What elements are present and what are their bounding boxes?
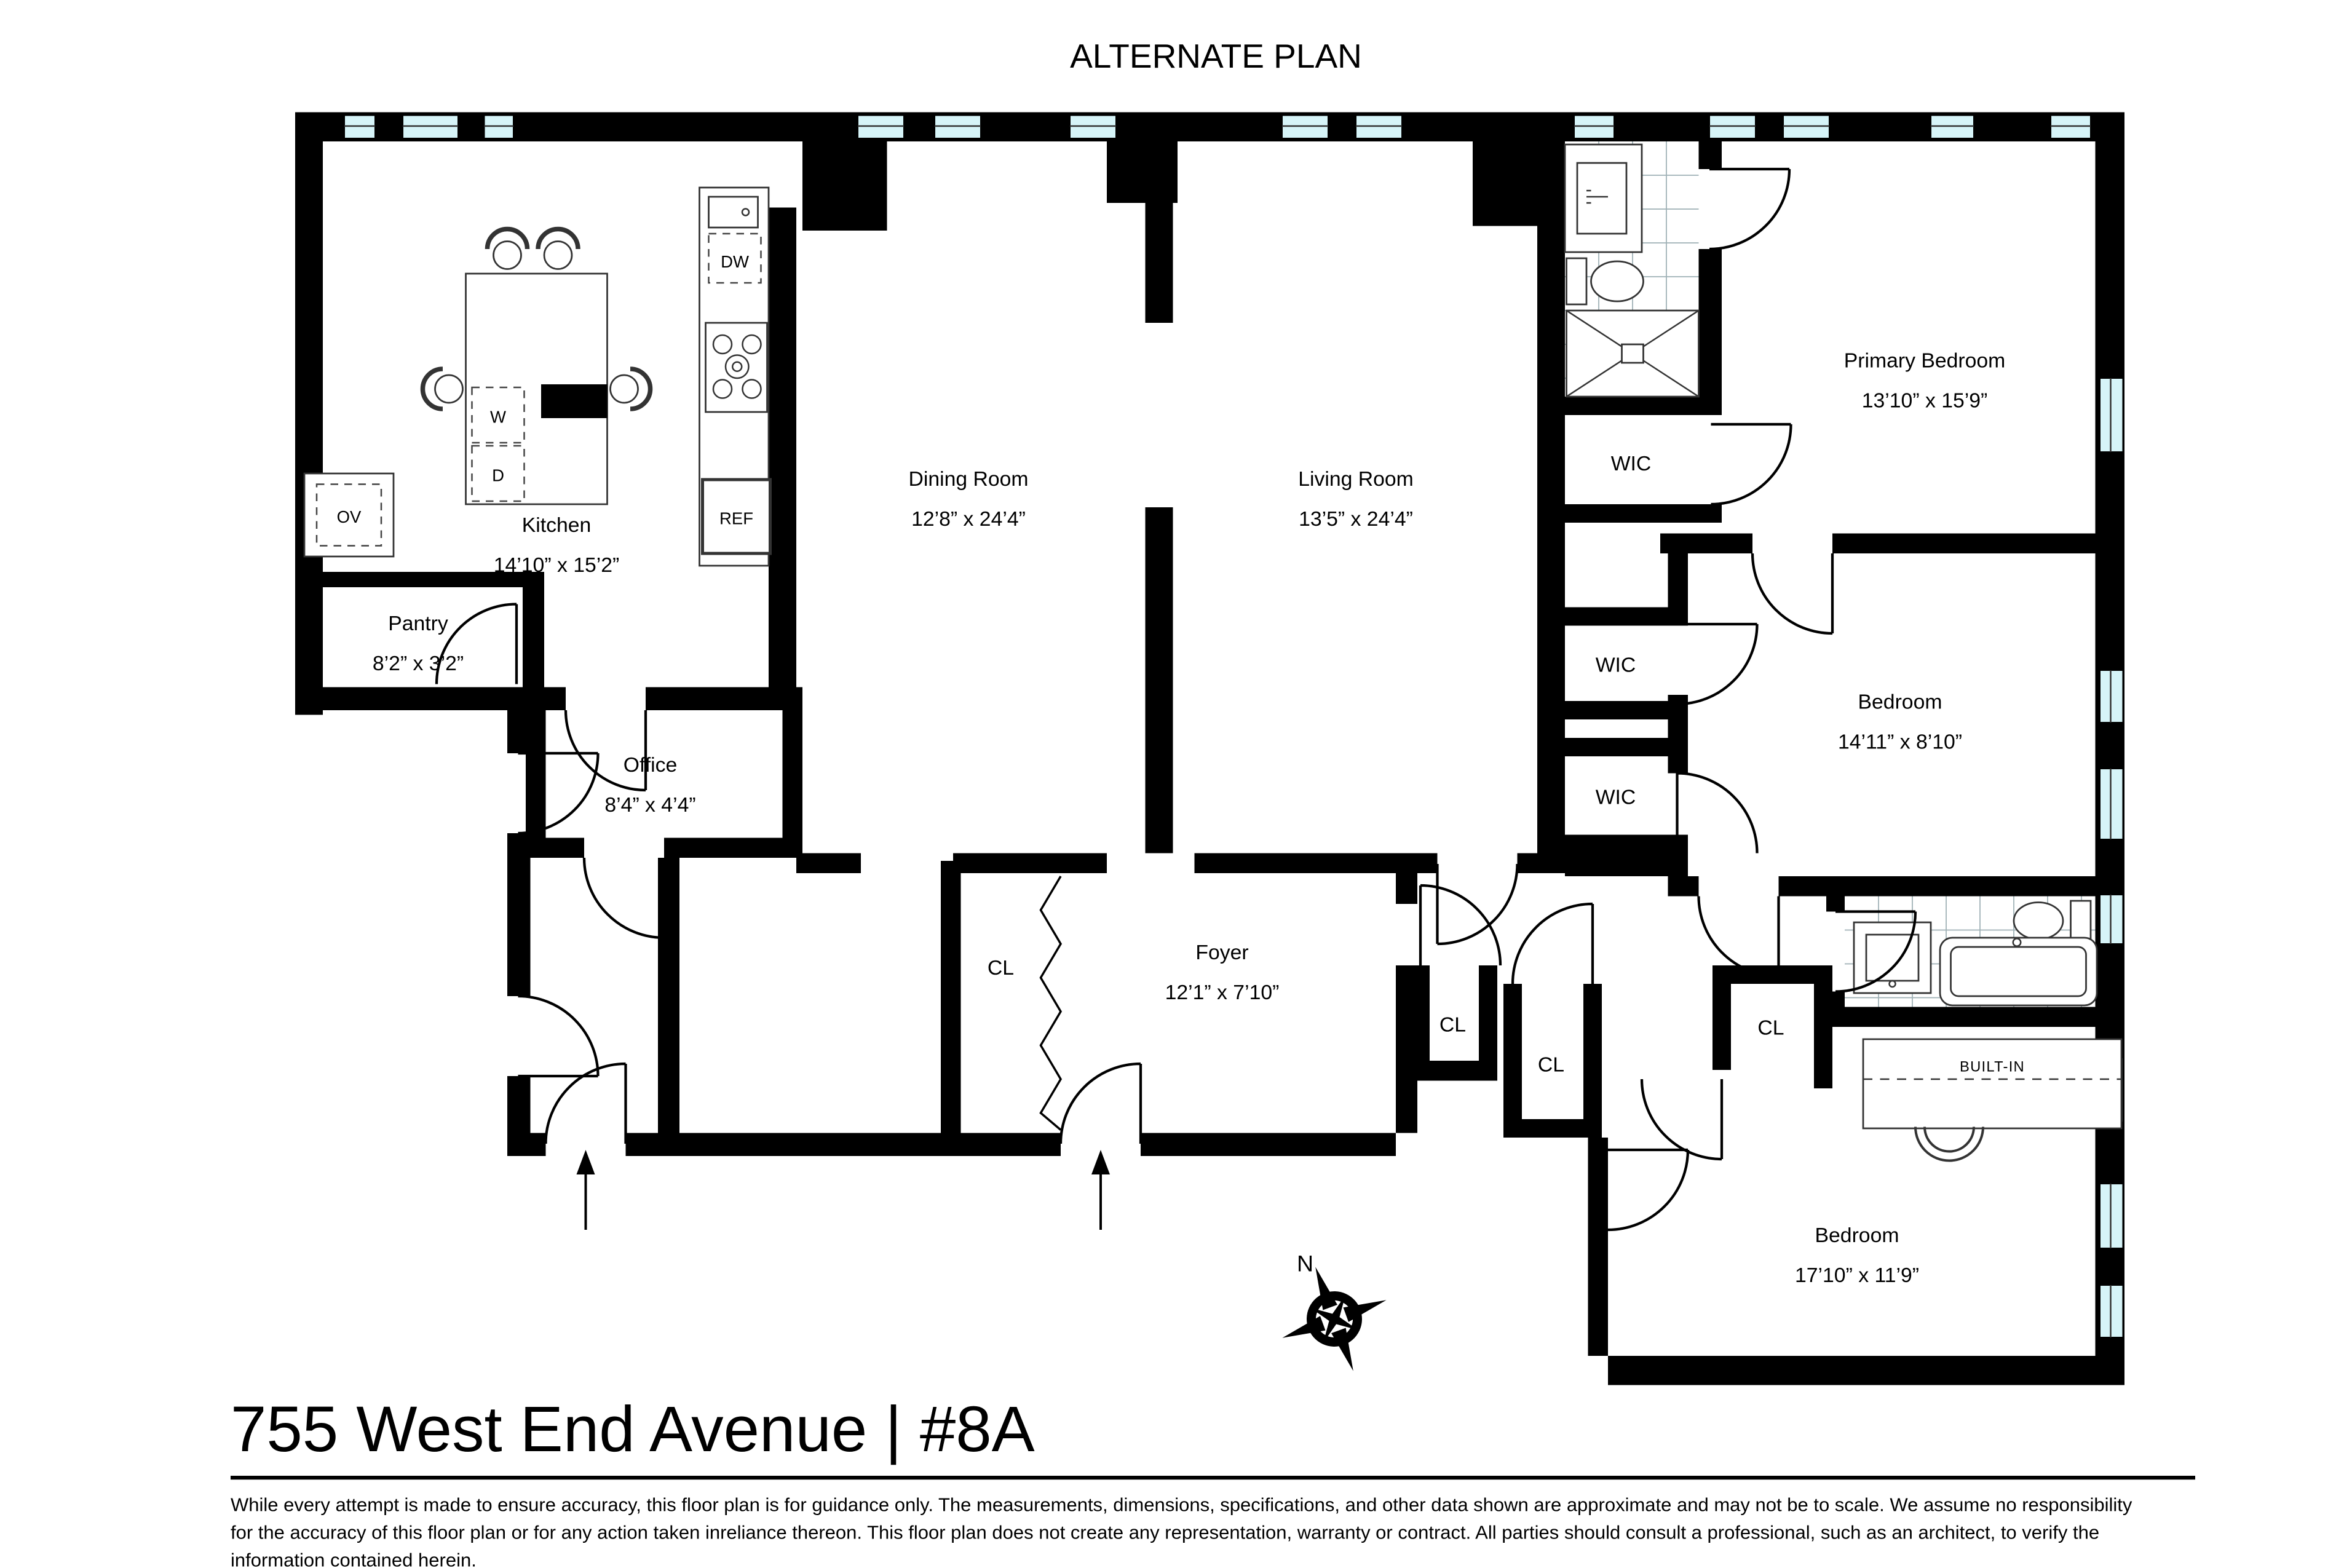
door-closet <box>1513 904 1593 984</box>
stove <box>706 323 767 412</box>
room-living: Living Room 13’5” x 24’4” <box>1298 467 1414 531</box>
chair-icon <box>423 369 463 409</box>
footer: 755 West End Avenue | #8A While every at… <box>231 1393 2195 1568</box>
room-bedroom-mid: Bedroom 14’11” x 8’10” <box>1838 691 1962 754</box>
wall-band <box>646 687 802 711</box>
primary-bathroom <box>1565 141 1699 397</box>
compass: N <box>1264 1248 1406 1390</box>
room-dims: 14’11” x 8’10” <box>1838 731 1962 754</box>
wall-bath-right <box>1699 141 1722 169</box>
bathroom-sink <box>1577 163 1626 234</box>
room-name: Primary Bedroom <box>1844 349 2006 373</box>
door-office-bottom <box>584 858 664 938</box>
room-dims: 17’10” x 11’9” <box>1795 1264 1919 1287</box>
entry-arrow-head <box>577 1150 595 1174</box>
kitchen-fixtures: DW REF OV W D <box>304 188 770 566</box>
wall-kitchen-divider <box>769 572 796 687</box>
room-name: Foyer <box>1195 941 1248 964</box>
wall-bedroom-left <box>1668 553 1689 615</box>
room-dims: 12’8” x 24’4” <box>911 507 1026 531</box>
cl-bedroom-label: CL <box>1757 1016 1784 1040</box>
toilet-bowl <box>1591 261 1644 301</box>
room-bedroom-bottom: Bedroom 17’10” x 11’9” <box>1795 1224 1919 1287</box>
door-closet <box>1420 885 1500 965</box>
room-dims: 12’1” x 7’10” <box>1165 981 1280 1004</box>
wall-hall-left <box>507 833 531 996</box>
wall-closet <box>1713 965 1731 1070</box>
disclaimer-line-2: for the accuracy of this floor plan or f… <box>231 1522 2099 1543</box>
wall-hall-left <box>507 710 531 753</box>
dryer-label: D <box>492 466 504 485</box>
wall-entry <box>626 1133 680 1157</box>
room-dims: 8’4” x 4’4” <box>604 793 695 817</box>
wall-band <box>295 687 566 711</box>
oven-label: OV <box>337 507 362 526</box>
door-foyer-entry <box>1061 1064 1141 1144</box>
wall-pantry-top <box>295 572 523 587</box>
wall-pilaster <box>802 141 887 231</box>
wall-office-bottom <box>526 838 584 858</box>
wall-bath-right <box>1699 249 1722 397</box>
wall-hall <box>1565 853 1688 877</box>
room-dims: 8’2” x 3’2” <box>373 652 464 675</box>
room-name: Office <box>624 753 678 777</box>
wall-bedroom-divider <box>1832 534 2096 554</box>
door-wic-3 <box>1677 774 1757 853</box>
wic-2-label: WIC <box>1596 654 1636 677</box>
wall-gallery <box>796 853 861 874</box>
wall-bedroom-divider <box>1660 534 1752 554</box>
room-name: Bedroom <box>1858 691 1942 714</box>
compass-north-label: N <box>1297 1251 1313 1277</box>
chair-icon <box>488 229 528 269</box>
room-dims: 13’5” x 24’4” <box>1299 507 1413 531</box>
wall-bedroom-left <box>1668 695 1689 774</box>
disclaimer-line-3: information contained herein. <box>231 1550 477 1568</box>
door-wic-2 <box>1677 624 1757 704</box>
toilet-tank <box>2071 901 2091 941</box>
room-name: Bedroom <box>1815 1224 1899 1247</box>
built-in-label: BUILT-IN <box>1960 1059 2025 1075</box>
wall-hall-right <box>658 858 679 1133</box>
wall-wic <box>1545 504 1722 523</box>
door-wic-primary <box>1711 424 1791 504</box>
door-closet <box>1642 1079 1722 1159</box>
bathtub-inner <box>1951 947 2086 996</box>
door-bedroom-mid-exit <box>1699 897 1779 976</box>
floor-plan-page: ALTERNATE PLAN <box>0 0 2352 1568</box>
wall-bedroom-bottom <box>1779 876 2096 897</box>
room-kitchen: Kitchen 14’10” x 15’2” <box>494 513 620 577</box>
wall-bath2-left <box>1826 897 1845 912</box>
wall-office-bottom <box>664 838 802 858</box>
closet-accordion-door <box>1041 876 1061 1130</box>
address-title: 755 West End Avenue | #8A <box>231 1393 1035 1465</box>
toilet-tank <box>1567 258 1587 304</box>
room-dims: 14’10” x 15’2” <box>494 553 620 577</box>
room-dining: Dining Room 12’8” x 24’4” <box>908 467 1028 531</box>
room-name: Dining Room <box>908 467 1028 491</box>
door-primary-bath <box>1709 169 1789 249</box>
wall-bedroom3-left <box>1588 1138 1609 1356</box>
shower-drain <box>1622 344 1644 363</box>
chair-icon <box>538 229 578 269</box>
door-bedroom-mid <box>1752 553 1832 633</box>
wall-foyer-bottom <box>679 1133 1061 1157</box>
wall-gallery <box>1518 853 1566 874</box>
wall-top <box>295 113 2124 142</box>
wall-wic <box>1545 608 1689 626</box>
door-office-top <box>566 710 646 790</box>
wall-foyer-bottom <box>1141 1133 1396 1157</box>
floor-plan-drawing: ALTERNATE PLAN <box>0 0 2352 1568</box>
wall-pantry-right <box>523 572 544 703</box>
built-in-desk: BUILT-IN <box>1863 1039 2121 1161</box>
door-hall <box>518 996 598 1076</box>
kitchen-sink <box>709 197 758 228</box>
wall-gallery <box>1396 853 1438 874</box>
wall-chimney <box>1473 141 1565 226</box>
wall-divider-stub <box>1146 507 1173 853</box>
wall-bedroom-bottom <box>1668 876 1699 897</box>
disclaimer-line-1: While every attempt is made to ensure ac… <box>231 1494 2132 1516</box>
refrigerator-label: REF <box>719 509 753 528</box>
cl-foyer-label: CL <box>988 956 1014 980</box>
wall-closet <box>1503 984 1522 1138</box>
wall-wic <box>1545 738 1689 756</box>
room-name: Living Room <box>1298 467 1414 491</box>
wall-entry <box>507 1133 546 1157</box>
room-primary-bedroom: Primary Bedroom 13’10” x 15’9” <box>1844 349 2006 413</box>
wall-bedroom-bottom <box>1608 1356 2124 1385</box>
room-pantry: Pantry 8’2” x 3’2” <box>373 612 464 675</box>
wall-closet-foyer <box>941 861 961 1133</box>
wall-gallery <box>1195 853 1396 874</box>
wall-left <box>295 113 323 715</box>
door-living-hall <box>1438 864 1518 944</box>
wall-closet <box>1411 1061 1497 1081</box>
wall-gallery <box>953 853 1107 874</box>
island-notch <box>541 384 608 418</box>
wall-divider-stub <box>1146 141 1173 323</box>
wall-closet <box>1503 1119 1602 1138</box>
cl-hall-1-label: CL <box>1439 1013 1466 1037</box>
wall-foyer-right <box>1396 873 1417 904</box>
wall-kitchen-divider <box>769 208 796 572</box>
cl-hall-2-label: CL <box>1538 1053 1564 1077</box>
plan-title: ALTERNATE PLAN <box>1070 37 1362 75</box>
chair-icon <box>611 369 651 409</box>
wall-wic <box>1545 835 1689 853</box>
desk <box>1863 1039 2121 1128</box>
washer-label: W <box>490 408 506 427</box>
room-name: Kitchen <box>522 513 592 537</box>
wall-office-right <box>783 687 803 858</box>
wall-wic <box>1545 701 1689 719</box>
room-foyer: Foyer 12’1” x 7’10” <box>1165 941 1280 1004</box>
desk-chair-icon <box>1915 1127 1983 1161</box>
wall-closet <box>1583 984 1602 1138</box>
room-dims: 13’10” x 15’9” <box>1862 389 1988 413</box>
toilet-bowl <box>2014 903 2063 940</box>
dishwasher-label: DW <box>721 252 749 271</box>
wic-3-label: WIC <box>1596 786 1636 809</box>
wall-bath2-bottom <box>1822 1007 2096 1028</box>
compass-rose-icon <box>1264 1248 1406 1390</box>
door-bedroom-bottom <box>1608 1150 1688 1230</box>
wic-primary-label: WIC <box>1611 452 1652 475</box>
wall-bath-bottom <box>1545 397 1722 415</box>
room-name: Pantry <box>388 612 448 635</box>
entry-arrow-head <box>1091 1150 1110 1174</box>
divider-line <box>231 1476 2195 1479</box>
entry-arrows <box>577 1150 1111 1230</box>
